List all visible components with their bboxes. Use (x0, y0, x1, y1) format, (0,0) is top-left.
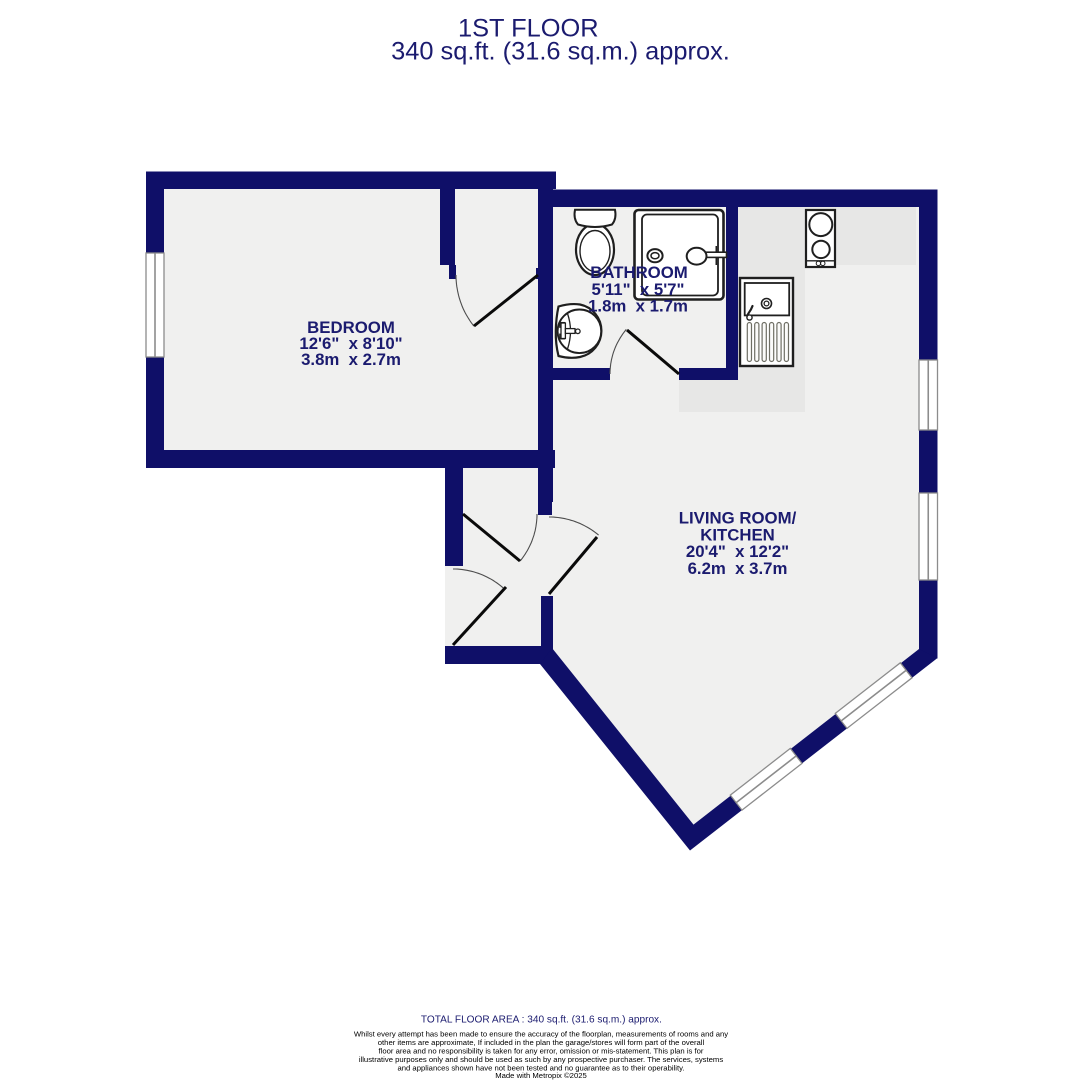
svg-text:3.8m x 2.7m: 3.8m x 2.7m (301, 350, 401, 369)
svg-text:Made with Metropix ©2025: Made with Metropix ©2025 (495, 1071, 587, 1080)
svg-text:340 sq.ft. (31.6 sq.m.) approx: 340 sq.ft. (31.6 sq.m.) approx. (391, 38, 730, 66)
svg-text:TOTAL FLOOR AREA : 340 sq.ft.: TOTAL FLOOR AREA : 340 sq.ft. (31.6 sq.m… (421, 1015, 662, 1026)
svg-text:1.8m x 1.7m: 1.8m x 1.7m (588, 297, 688, 316)
svg-text:6.2m x 3.7m: 6.2m x 3.7m (688, 559, 788, 578)
